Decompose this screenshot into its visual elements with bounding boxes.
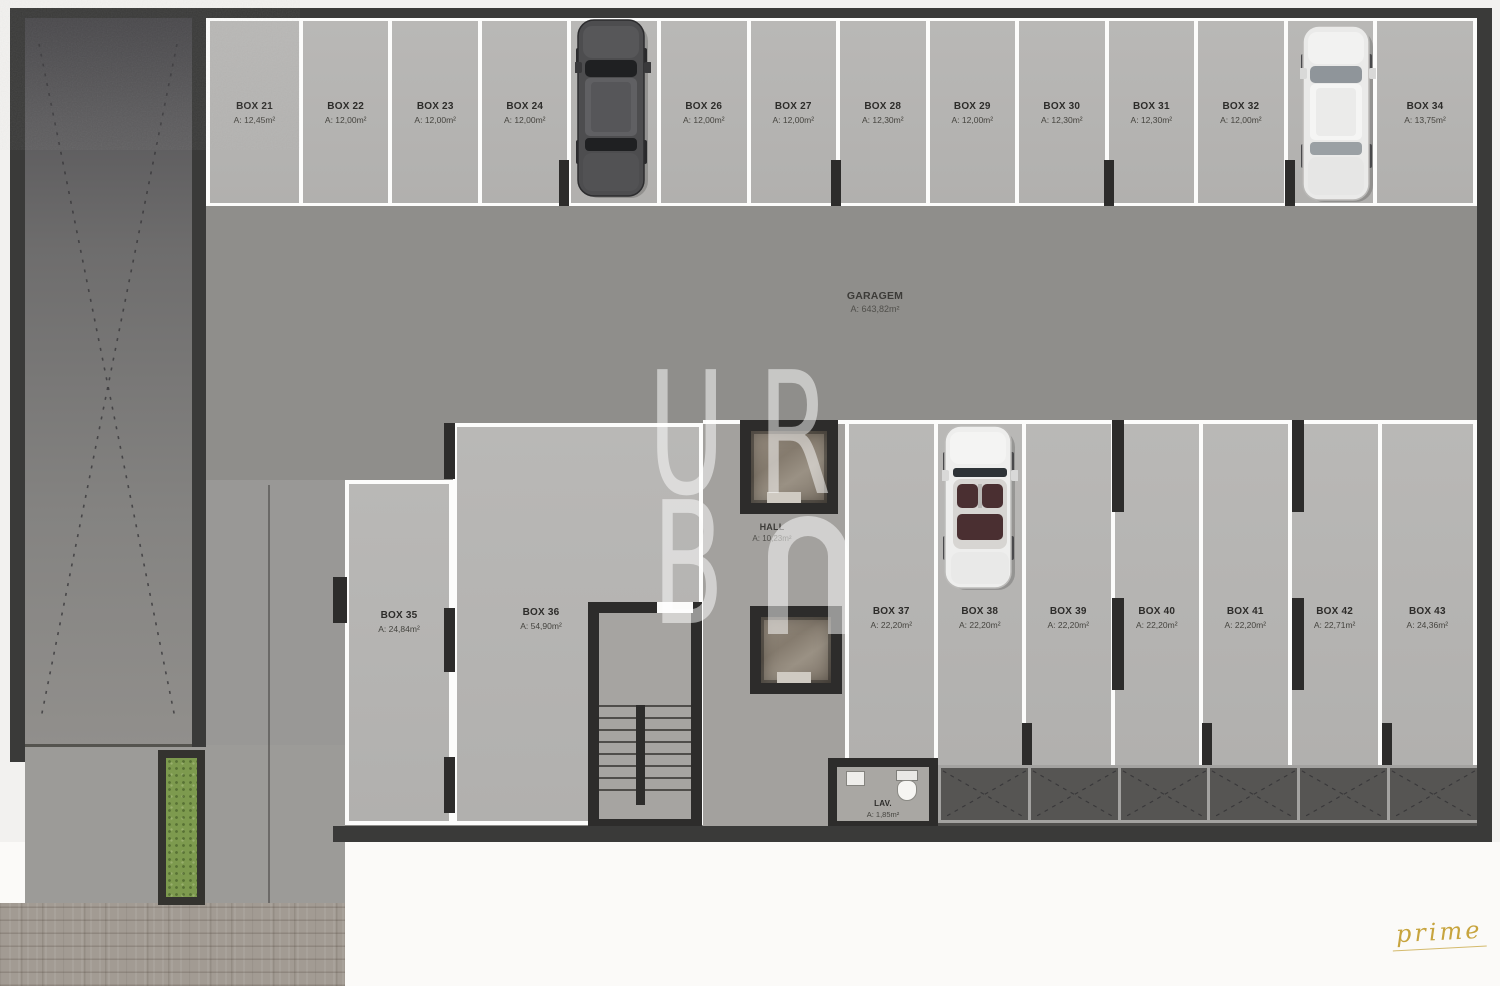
ramp-wall (192, 18, 206, 747)
box-name: BOX 22 (303, 101, 389, 114)
stair-treads (599, 705, 691, 801)
box-name: BOX 32 (1198, 101, 1284, 114)
ramp-slope-marking (25, 18, 192, 745)
parking-box: BOX 26A: 12,00m² (661, 21, 751, 203)
parking-box: BOX 42A: 22,71m² (1292, 424, 1382, 765)
watermark-letter-n-arch (768, 516, 848, 634)
storage-cell (1387, 768, 1477, 820)
parking-box: BOX 29A: 12,00m² (930, 21, 1020, 203)
parking-box: BOX 27A: 12,00m² (751, 21, 841, 203)
box-name: BOX 37 (849, 606, 934, 619)
box-name: BOX 31 (1109, 101, 1195, 114)
lav-room: LAV.A: 1,85m² (828, 758, 938, 830)
garage-name: GARAGEM (795, 290, 955, 303)
column-stub (559, 160, 569, 206)
storage-cell (1207, 768, 1297, 820)
box-name: BOX 28 (840, 101, 926, 114)
box-name: BOX 23 (392, 101, 478, 114)
box-name: BOX 39 (1026, 606, 1111, 619)
storage-cell (1028, 768, 1118, 820)
box-area: A: 22,20m² (1203, 620, 1288, 630)
box-area: A: 12,00m² (661, 115, 747, 125)
box-name: BOX 35 (349, 610, 449, 623)
box-area: A: 12,30m² (840, 115, 926, 125)
wall-segment (444, 423, 455, 479)
parking-box: BOX 37A: 22,20m² (845, 424, 938, 765)
wall-left (10, 8, 25, 762)
box-area: A: 12,00m² (392, 115, 478, 125)
box-area: A: 13,75m² (1377, 115, 1473, 125)
column-stub (831, 160, 841, 206)
wall-right (1477, 8, 1492, 842)
parking-box: BOX 22A: 12,00m² (303, 21, 393, 203)
planter (158, 750, 205, 905)
column-stub (1382, 723, 1392, 765)
wall-segment (1292, 420, 1304, 512)
parking-box: BOX 21A: 12,45m² (206, 21, 303, 203)
parking-box: BOX 35A: 24,84m² (345, 480, 453, 825)
box-name: BOX 34 (1377, 101, 1473, 114)
wall-segment (1112, 598, 1124, 690)
storage-cell (938, 768, 1028, 820)
box-area: A: 12,00m² (751, 115, 837, 125)
drive-aisle-strip (206, 480, 345, 745)
box-area: A: 12,00m² (1198, 115, 1284, 125)
signature-prime: prime (1391, 916, 1487, 952)
ramp-end-line (25, 744, 192, 747)
column-stub (1285, 160, 1295, 206)
car-convertible-white (942, 424, 1018, 597)
lav-area: A: 1,85m² (837, 810, 929, 819)
garagem-label: GARAGEM A: 643,82m² (795, 290, 955, 315)
storage-x-marking (1210, 768, 1297, 821)
wall-top (10, 8, 1492, 18)
car-suv-gray (575, 18, 651, 205)
box-area: A: 12,30m² (1109, 115, 1195, 125)
parking-box: BOX 23A: 12,00m² (392, 21, 482, 203)
storage-x-marking (1300, 768, 1387, 821)
stair-rail (636, 705, 645, 805)
box-name: BOX 27 (751, 101, 837, 114)
box-area: A: 12,00m² (303, 115, 389, 125)
box-area: A: 22,20m² (1115, 620, 1200, 630)
storage-cell (1297, 768, 1387, 820)
watermark-letter-b: B (652, 480, 724, 650)
parking-box: BOX 30A: 12,30m² (1019, 21, 1109, 203)
storage-cell (1118, 768, 1208, 820)
drive-edge-line (268, 485, 270, 903)
column-stub (1022, 723, 1032, 765)
box-name: BOX 29 (930, 101, 1016, 114)
box-name: BOX 42 (1292, 606, 1378, 619)
box-area: A: 12,30m² (1019, 115, 1105, 125)
box-area: A: 22,20m² (1026, 620, 1111, 630)
box-name: BOX 21 (210, 101, 299, 114)
elevator-door-gap (777, 672, 811, 683)
wall-segment (444, 757, 455, 813)
storage-strip (845, 765, 1477, 826)
storage-x-marking (941, 768, 1028, 821)
parking-box: BOX 28A: 12,30m² (840, 21, 930, 203)
parking-box: BOX 41A: 22,20m² (1203, 424, 1292, 765)
box-name: BOX 24 (482, 101, 568, 114)
wall-segment (1292, 598, 1304, 690)
car-sedan-white (1300, 24, 1376, 209)
parking-box: BOX 40A: 22,20m² (1115, 424, 1204, 765)
parking-box: BOX 39A: 22,20m² (1026, 424, 1115, 765)
box-name: BOX 30 (1019, 101, 1105, 114)
box-name: BOX 26 (661, 101, 747, 114)
parking-box: BOX 43A: 24,36m² (1382, 424, 1477, 765)
storage-x-marking (1390, 768, 1477, 821)
box-area: A: 22,20m² (938, 620, 1023, 630)
column-stub (1202, 723, 1212, 765)
wall-segment (444, 608, 455, 672)
wall-segment (1112, 420, 1124, 512)
box-area: A: 24,84m² (349, 624, 449, 634)
storage-x-marking (1031, 768, 1118, 821)
wall-bottom (333, 826, 1492, 842)
lav-name: LAV. (837, 799, 929, 809)
box-name: BOX 40 (1115, 606, 1200, 619)
watermark-letter-r: R (758, 350, 831, 520)
column-stub (1104, 160, 1114, 206)
storage-x-marking (1121, 768, 1208, 821)
box-area: A: 24,36m² (1382, 620, 1473, 630)
box-area: A: 22,20m² (849, 620, 934, 630)
parking-box: BOX 31A: 12,30m² (1109, 21, 1199, 203)
box-area: A: 12,00m² (482, 115, 568, 125)
box-area: A: 22,71m² (1292, 620, 1378, 630)
parking-box: BOX 32A: 12,00m² (1198, 21, 1288, 203)
ramp-area (25, 18, 192, 745)
box-area: A: 12,00m² (930, 115, 1016, 125)
garage-area: A: 643,82m² (795, 304, 955, 315)
wall-segment (333, 577, 347, 623)
box-name: BOX 38 (938, 606, 1023, 619)
box-name: BOX 41 (1203, 606, 1288, 619)
bottom-parking-row: BOX 37A: 22,20m² BOX 38A: 22,20m² BOX 39… (845, 420, 1477, 765)
plan-canvas: BOX 21A: 12,45m² BOX 22A: 12,00m² BOX 23… (0, 0, 1500, 986)
box-area: A: 12,45m² (210, 115, 299, 125)
box-name: BOX 43 (1382, 606, 1473, 619)
pavement-sidewalk (0, 903, 345, 986)
parking-box: BOX 34A: 13,75m² (1377, 21, 1477, 203)
